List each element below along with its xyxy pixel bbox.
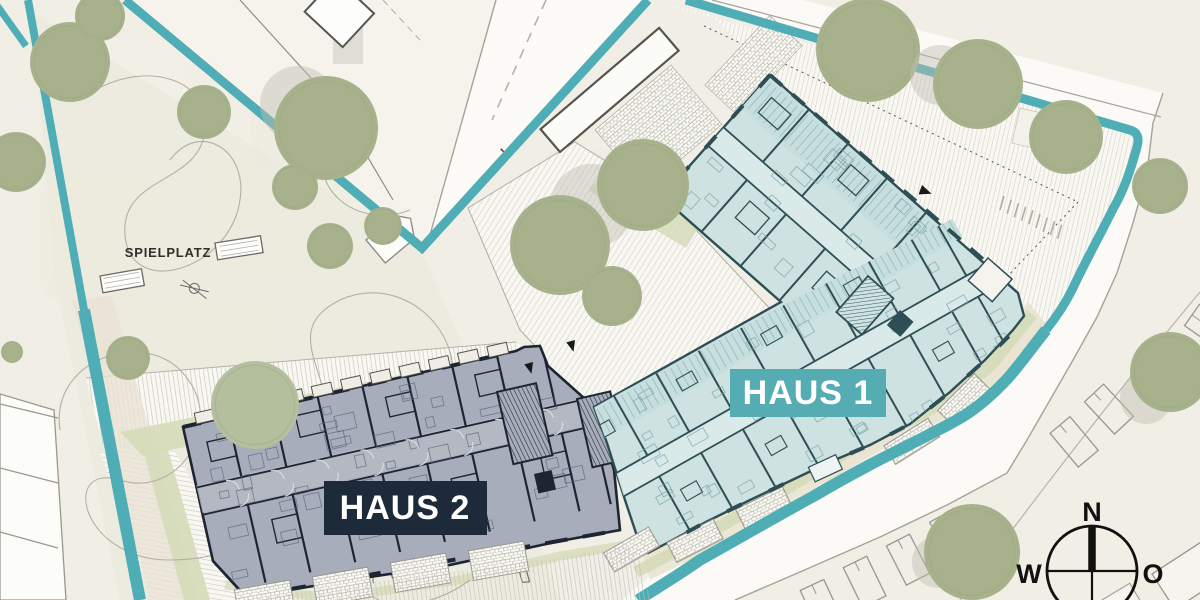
svg-text:W: W	[1016, 559, 1042, 589]
svg-text:HAUS 1: HAUS 1	[743, 374, 874, 412]
svg-text:HAUS 2: HAUS 2	[340, 489, 471, 527]
svg-text:O: O	[1142, 559, 1163, 589]
svg-text:SPIELPLATZ: SPIELPLATZ	[125, 245, 211, 260]
svg-text:N: N	[1082, 497, 1102, 527]
